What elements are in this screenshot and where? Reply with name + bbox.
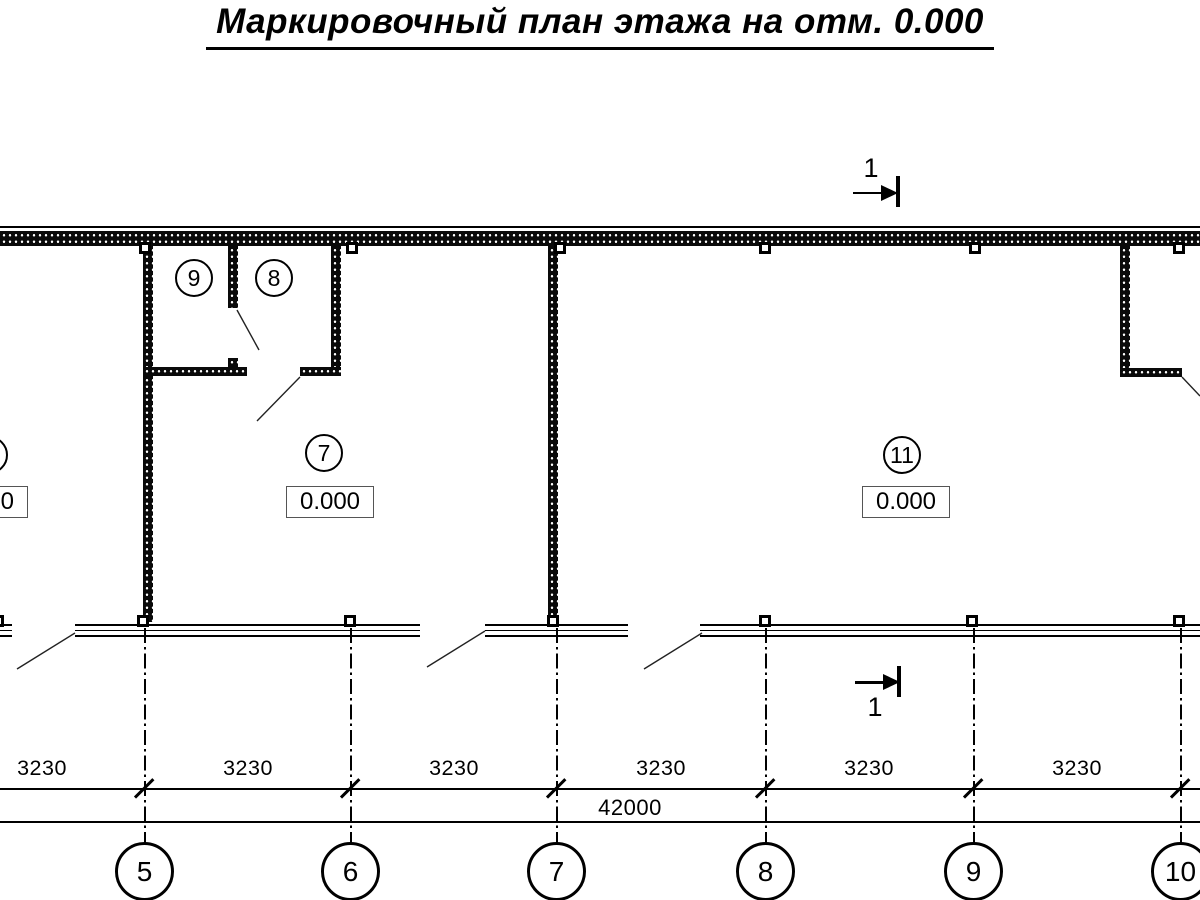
elevation-value-room7: 0.000: [300, 488, 360, 516]
axis-centerline-7: [556, 628, 558, 844]
axis-bubble-6: 6: [321, 842, 380, 900]
axis-bubble-8: 8: [736, 842, 795, 900]
dim-label-total: 42000: [585, 795, 675, 821]
axis-bubble-7: 7: [527, 842, 586, 900]
door-swing-room11: [1182, 377, 1200, 396]
axis-label-7: 7: [549, 856, 565, 888]
axis-marker-top-5: [139, 242, 151, 254]
sill-leader-3: [644, 633, 702, 669]
door-swing-room9: [237, 310, 259, 350]
axis-marker-bottom-5: [137, 615, 149, 627]
axis-marker-top-9: [969, 242, 981, 254]
axis-bubble-5: 5: [115, 842, 174, 900]
axis-label-6: 6: [343, 856, 359, 888]
section-cut-bar-icon: [897, 666, 901, 697]
dim-label-bay-5: 3230: [824, 756, 914, 781]
elevation-value-room11: 0.000: [876, 488, 936, 516]
elevation-box-room11: 0.000: [862, 486, 950, 518]
axis-marker-bottom-10: [1173, 615, 1185, 627]
axis-label-9: 9: [966, 856, 982, 888]
elevation-box-room7: 0.000: [286, 486, 374, 518]
dim-label-bay-4: 3230: [616, 756, 706, 781]
dim-label-bay-1: 3230: [0, 756, 87, 781]
dimension-line-bays: [0, 788, 1200, 790]
axis-marker-top-6: [346, 242, 358, 254]
axis-label-10: 10: [1165, 856, 1196, 888]
floor-plan-drawing: Маркировочный план этажа на отм. 0.000 1: [0, 0, 1200, 900]
sill-leader-1: [17, 633, 75, 669]
room-bubble-9: 9: [175, 259, 213, 297]
axis-marker-bottom-7: [547, 615, 559, 627]
axis-centerline-5: [144, 628, 146, 844]
room-bubble-8: 8: [255, 259, 293, 297]
room-number-9: 9: [188, 265, 201, 292]
axis-centerline-10: [1180, 628, 1182, 844]
axis-bubble-10: 10: [1151, 842, 1200, 900]
axis-marker-top-8: [759, 242, 771, 254]
dim-label-bay-6: 3230: [1032, 756, 1122, 781]
axis-centerline-8: [765, 628, 767, 844]
room-bubble-7: 7: [305, 434, 343, 472]
axis-marker-bottom-6: [344, 615, 356, 627]
door-swing-and-leader-lines: [0, 0, 1200, 900]
dim-label-bay-3: 3230: [409, 756, 499, 781]
axis-label-5: 5: [137, 856, 153, 888]
room-bubble-11: 11: [883, 436, 921, 474]
room-number-7: 7: [318, 440, 331, 467]
axis-centerline-9: [973, 628, 975, 844]
axis-marker-top-7: [554, 242, 566, 254]
axis-centerline-6: [350, 628, 352, 844]
dim-label-bay-2: 3230: [203, 756, 293, 781]
axis-marker-bottom-8: [759, 615, 771, 627]
axis-bubble-9: 9: [944, 842, 1003, 900]
axis-marker-bottom-4: [0, 615, 4, 627]
elevation-box-left-partial: 0.000: [0, 486, 28, 518]
section-marker-bottom-label: 1: [860, 692, 890, 723]
dimension-line-total: [0, 821, 1200, 823]
axis-marker-bottom-9: [966, 615, 978, 627]
sill-leader-2: [427, 631, 485, 667]
axis-marker-top-10: [1173, 242, 1185, 254]
door-swing-room7: [257, 377, 300, 421]
window-sill-1: [75, 624, 420, 637]
room-number-11: 11: [890, 442, 914, 469]
axis-label-8: 8: [758, 856, 774, 888]
room-number-8: 8: [268, 265, 281, 292]
elevation-value-left-partial: 0.000: [0, 488, 14, 516]
window-sill-3: [700, 624, 1200, 637]
